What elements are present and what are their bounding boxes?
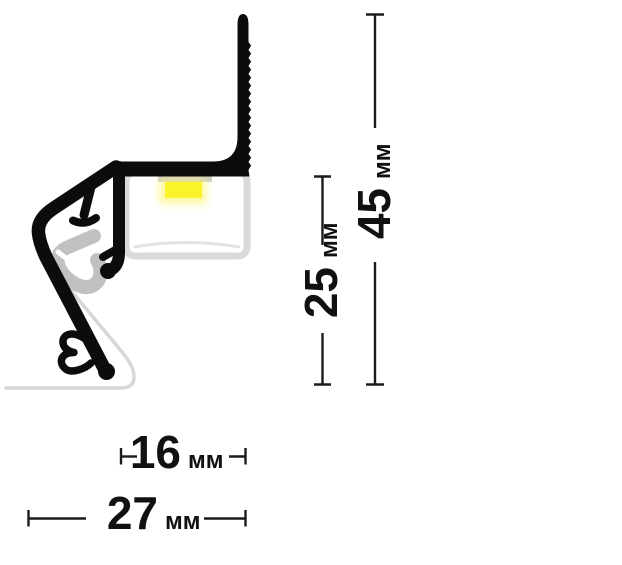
foot-blob bbox=[98, 363, 115, 380]
technical-drawing-page: 45 мм 25 мм 16 мм 27 мм bbox=[0, 0, 622, 565]
dim-16-value: 16 bbox=[130, 426, 181, 478]
dim-27-value: 27 bbox=[107, 487, 158, 539]
led-channel-box bbox=[126, 172, 247, 256]
dim-25-unit: мм bbox=[316, 222, 343, 258]
dim-25-value: 25 bbox=[295, 267, 347, 318]
dim-27-unit: мм bbox=[165, 508, 201, 535]
inner-stem-foot bbox=[73, 218, 96, 223]
dim-45-value: 45 bbox=[348, 188, 400, 239]
serrated-mounting-strip bbox=[114, 14, 252, 177]
profile-drawing: 45 мм 25 мм 16 мм 27 мм bbox=[0, 0, 622, 565]
retainer-hooks bbox=[61, 334, 91, 371]
led-strip-yellow bbox=[165, 182, 202, 198]
wall-hook-blob bbox=[100, 263, 116, 279]
dim-45-unit: мм bbox=[369, 143, 396, 179]
dim-16-unit: мм bbox=[188, 447, 224, 474]
